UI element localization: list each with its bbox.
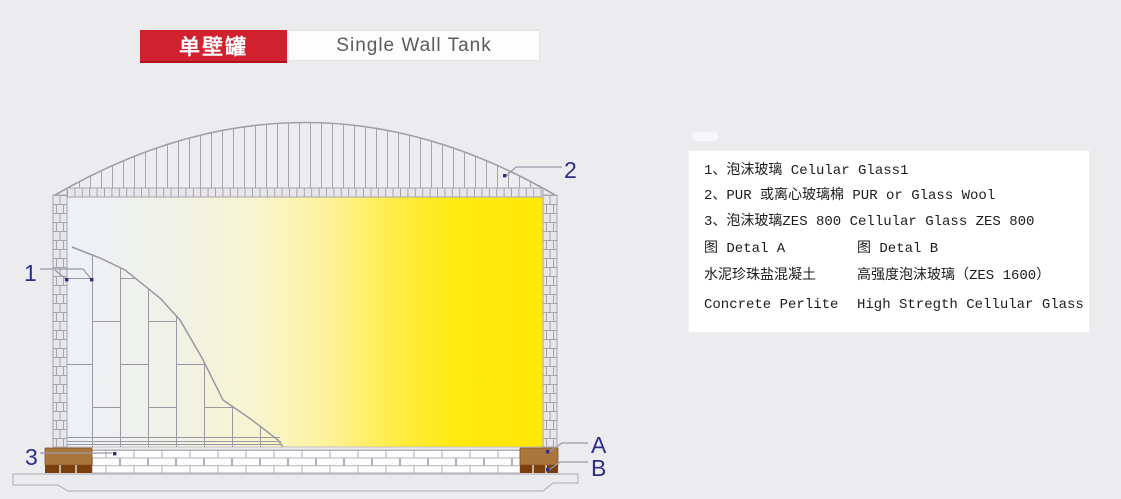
corner-block-left	[45, 448, 92, 473]
callout-2: 2	[564, 157, 577, 183]
detail-b-line-en: High Stregth Cellular Glass	[857, 297, 1084, 313]
detail-a-line-en: Concrete Perlite	[704, 297, 838, 313]
corner-block-right	[520, 448, 558, 473]
tank-wall-right	[543, 195, 557, 447]
legend-item-3: 3、泡沫玻璃ZES 800 Cellular Glass ZES 800	[704, 210, 1034, 230]
detail-b-title: 图 Detal B	[857, 237, 938, 257]
detail-b-line-cn: 高强度泡沫玻璃（ZES 1600）	[857, 264, 1050, 284]
detail-a-title: 图 Detal A	[704, 237, 785, 257]
legend-item-1: 1、泡沫玻璃 Celular Glass1	[704, 159, 908, 179]
callout-1: 1	[24, 260, 37, 286]
detail-a-line-cn: 水泥珍珠盐混凝土	[704, 264, 816, 284]
page: 单壁罐 Single Wall Tank	[0, 0, 1121, 499]
base-brick-courses	[92, 450, 520, 473]
foundation	[13, 474, 578, 491]
legend-box: 1、泡沫玻璃 Celular Glass1 2、PUR 或离心玻璃棉 PUR o…	[688, 150, 1090, 333]
callout-B: B	[591, 455, 606, 481]
tank-wall-left	[53, 195, 67, 447]
tank-diagram: 1 2 3 A B	[0, 0, 660, 499]
legend-tab	[692, 132, 718, 141]
roof-tile-strip	[67, 188, 543, 197]
callout-3: 3	[25, 444, 38, 470]
legend-item-2: 2、PUR 或离心玻璃棉 PUR or Glass Wool	[704, 184, 995, 204]
dome-roof	[55, 123, 555, 196]
